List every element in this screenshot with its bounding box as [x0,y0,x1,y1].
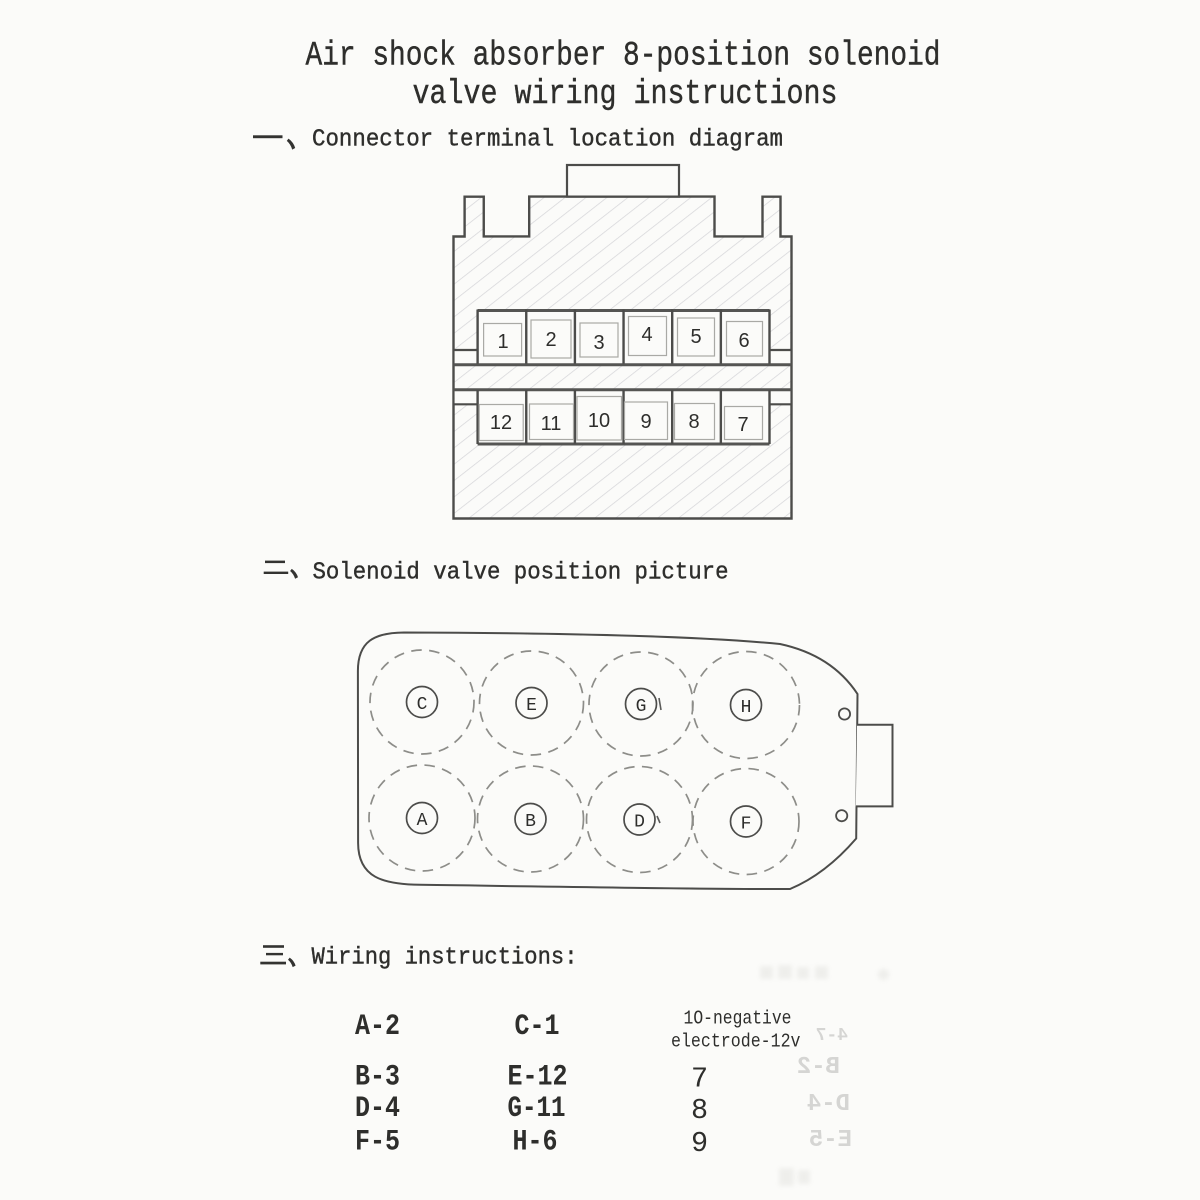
svg-text:12: 12 [490,412,512,434]
svg-text:B: B [525,812,536,832]
svg-text:6: 6 [738,330,749,352]
svg-text:B-3: B-3 [355,1060,400,1094]
svg-text:7: 7 [737,414,748,436]
svg-text:B-2: B-2 [797,1054,840,1081]
svg-text:7: 7 [691,1063,708,1096]
svg-text:Air shock absorber 8-position: Air shock absorber 8-position solenoid [306,38,941,76]
svg-text:11: 11 [541,413,562,435]
svg-text:1O-negative: 1O-negative [684,1008,792,1030]
svg-text:D: D [634,813,645,833]
svg-text:E: E [526,696,537,716]
svg-text:G-11: G-11 [508,1091,566,1125]
svg-text:4-7: 4-7 [816,1026,848,1046]
svg-text:E-12: E-12 [508,1060,568,1094]
svg-text:8: 8 [688,411,699,433]
svg-text:2: 2 [545,329,556,351]
svg-text:1: 1 [497,331,508,353]
svg-text:A: A [417,811,428,831]
svg-text:G: G [636,697,647,717]
svg-text:F: F [741,815,752,835]
svg-text:9: 9 [691,1127,708,1160]
svg-text:Solenoid valve position pictur: Solenoid valve position picture [313,560,729,587]
svg-text:C: C [417,695,428,715]
svg-text:Wiring instructions:: Wiring instructions: [312,945,578,972]
svg-text:electrode-12v: electrode-12v [671,1031,801,1053]
svg-text:9: 9 [640,411,651,433]
svg-text:E-5: E-5 [809,1127,852,1154]
svg-text:5: 5 [690,326,701,348]
svg-text:F-5: F-5 [355,1124,400,1158]
svg-text:3: 3 [593,332,604,354]
svg-text:valve wiring instructions: valve wiring instructions [413,76,838,114]
svg-text:H-6: H-6 [513,1124,558,1158]
svg-text:C-1: C-1 [515,1009,560,1043]
svg-text:A-2: A-2 [355,1009,400,1043]
svg-text:D-4: D-4 [355,1091,400,1125]
svg-text:Connector terminal location di: Connector terminal location diagram [312,127,783,154]
svg-text:H: H [741,698,752,718]
svg-text:8: 8 [691,1094,708,1127]
svg-text:10: 10 [588,410,610,432]
svg-text:4: 4 [641,324,652,346]
svg-text:D-4: D-4 [807,1091,850,1118]
